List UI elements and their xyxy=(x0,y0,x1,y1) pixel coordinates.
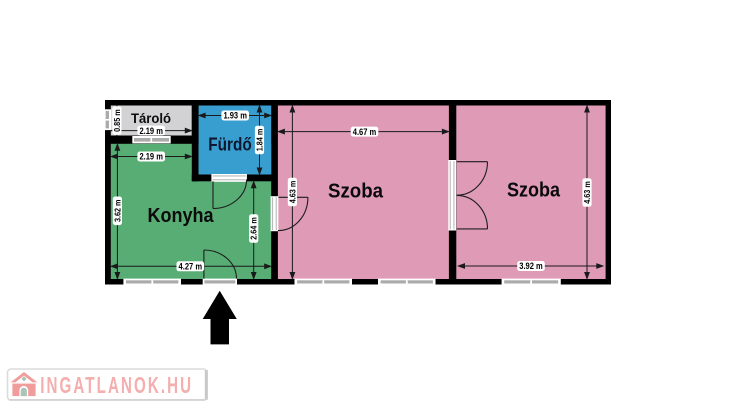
svg-text:Fürdő: Fürdő xyxy=(208,133,252,154)
svg-text:4.67 m: 4.67 m xyxy=(353,127,377,137)
svg-text:Konyha: Konyha xyxy=(148,205,215,227)
svg-text:INGATLANOK.HU: INGATLANOK.HU xyxy=(40,373,193,398)
svg-text:2.19 m: 2.19 m xyxy=(139,152,163,162)
svg-text:4.63 m: 4.63 m xyxy=(288,181,297,204)
svg-text:0.85 m: 0.85 m xyxy=(113,109,122,132)
svg-text:2.19 m: 2.19 m xyxy=(139,126,163,136)
svg-text:1.84 m: 1.84 m xyxy=(255,129,264,152)
svg-text:4.27 m: 4.27 m xyxy=(179,262,203,272)
svg-text:3.62 m: 3.62 m xyxy=(113,200,122,223)
svg-text:Szoba: Szoba xyxy=(328,181,384,203)
svg-text:Szoba: Szoba xyxy=(507,180,561,202)
svg-text:3.92 m: 3.92 m xyxy=(519,261,543,271)
svg-text:1.93 m: 1.93 m xyxy=(223,111,247,121)
svg-text:Tároló: Tároló xyxy=(131,110,171,126)
svg-text:2.64 m: 2.64 m xyxy=(250,217,259,240)
svg-text:4.63 m: 4.63 m xyxy=(583,181,592,204)
